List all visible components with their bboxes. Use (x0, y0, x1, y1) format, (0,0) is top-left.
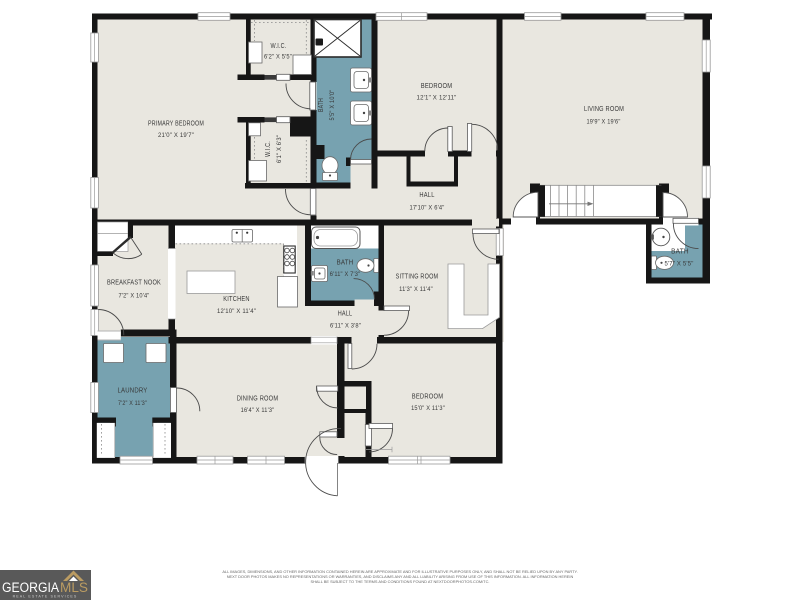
svg-text:BATH: BATH (337, 258, 354, 267)
svg-text:LIVING ROOM: LIVING ROOM (584, 104, 624, 113)
svg-text:MLS: MLS (60, 580, 88, 595)
svg-text:PRIMARY BEDROOM: PRIMARY BEDROOM (148, 119, 204, 128)
svg-text:5'7" X 5'5": 5'7" X 5'5" (665, 261, 694, 268)
svg-text:DINING ROOM: DINING ROOM (237, 394, 279, 403)
svg-text:19'9" X 19'6": 19'9" X 19'6" (587, 119, 621, 126)
svg-text:KITCHEN: KITCHEN (223, 294, 250, 303)
svg-text:17'10" X 6'4": 17'10" X 6'4" (410, 205, 445, 212)
svg-text:12'10" X 11'4": 12'10" X 11'4" (217, 308, 256, 315)
svg-text:6'11" X 7'3": 6'11" X 7'3" (330, 271, 361, 278)
svg-text:5'5" X 10'0": 5'5" X 10'0" (329, 89, 336, 120)
svg-text:W.I.C.: W.I.C. (271, 41, 287, 50)
svg-text:7'2" X 11'3": 7'2" X 11'3" (118, 400, 147, 407)
svg-text:SHALL BE SUBJECT TO THE TERMS: SHALL BE SUBJECT TO THE TERMS AND CONDIT… (311, 579, 490, 584)
svg-text:W.I.C.: W.I.C. (263, 141, 272, 157)
svg-text:6'1" X 6'3": 6'1" X 6'3" (276, 135, 283, 163)
svg-text:16'4" X 11'3": 16'4" X 11'3" (241, 407, 275, 414)
svg-text:6'11" X 3'8": 6'11" X 3'8" (330, 323, 361, 330)
svg-text:12'1" X 12'11": 12'1" X 12'11" (417, 95, 457, 102)
svg-text:21'0" X 19'7": 21'0" X 19'7" (158, 132, 194, 139)
svg-text:HALL: HALL (338, 309, 353, 318)
svg-text:11'3" X 11'4": 11'3" X 11'4" (399, 286, 433, 293)
svg-text:15'0" X 11'3": 15'0" X 11'3" (411, 405, 445, 412)
svg-text:BEDROOM: BEDROOM (412, 392, 444, 401)
svg-text:REAL ESTATE SERVICES: REAL ESTATE SERVICES (13, 595, 78, 599)
svg-text:7'2" X 10'4": 7'2" X 10'4" (119, 293, 150, 300)
svg-text:SITTING ROOM: SITTING ROOM (396, 272, 439, 281)
svg-text:BREAKFAST NOOK: BREAKFAST NOOK (107, 278, 161, 287)
svg-text:LAUNDRY: LAUNDRY (118, 386, 148, 395)
svg-text:GEORGIA: GEORGIA (2, 580, 59, 595)
svg-text:BEDROOM: BEDROOM (421, 81, 453, 90)
svg-text:BATH: BATH (316, 98, 325, 112)
svg-text:HALL: HALL (419, 190, 434, 199)
svg-text:6'2" X 5'5": 6'2" X 5'5" (264, 54, 292, 61)
svg-text:BATH: BATH (671, 247, 689, 256)
